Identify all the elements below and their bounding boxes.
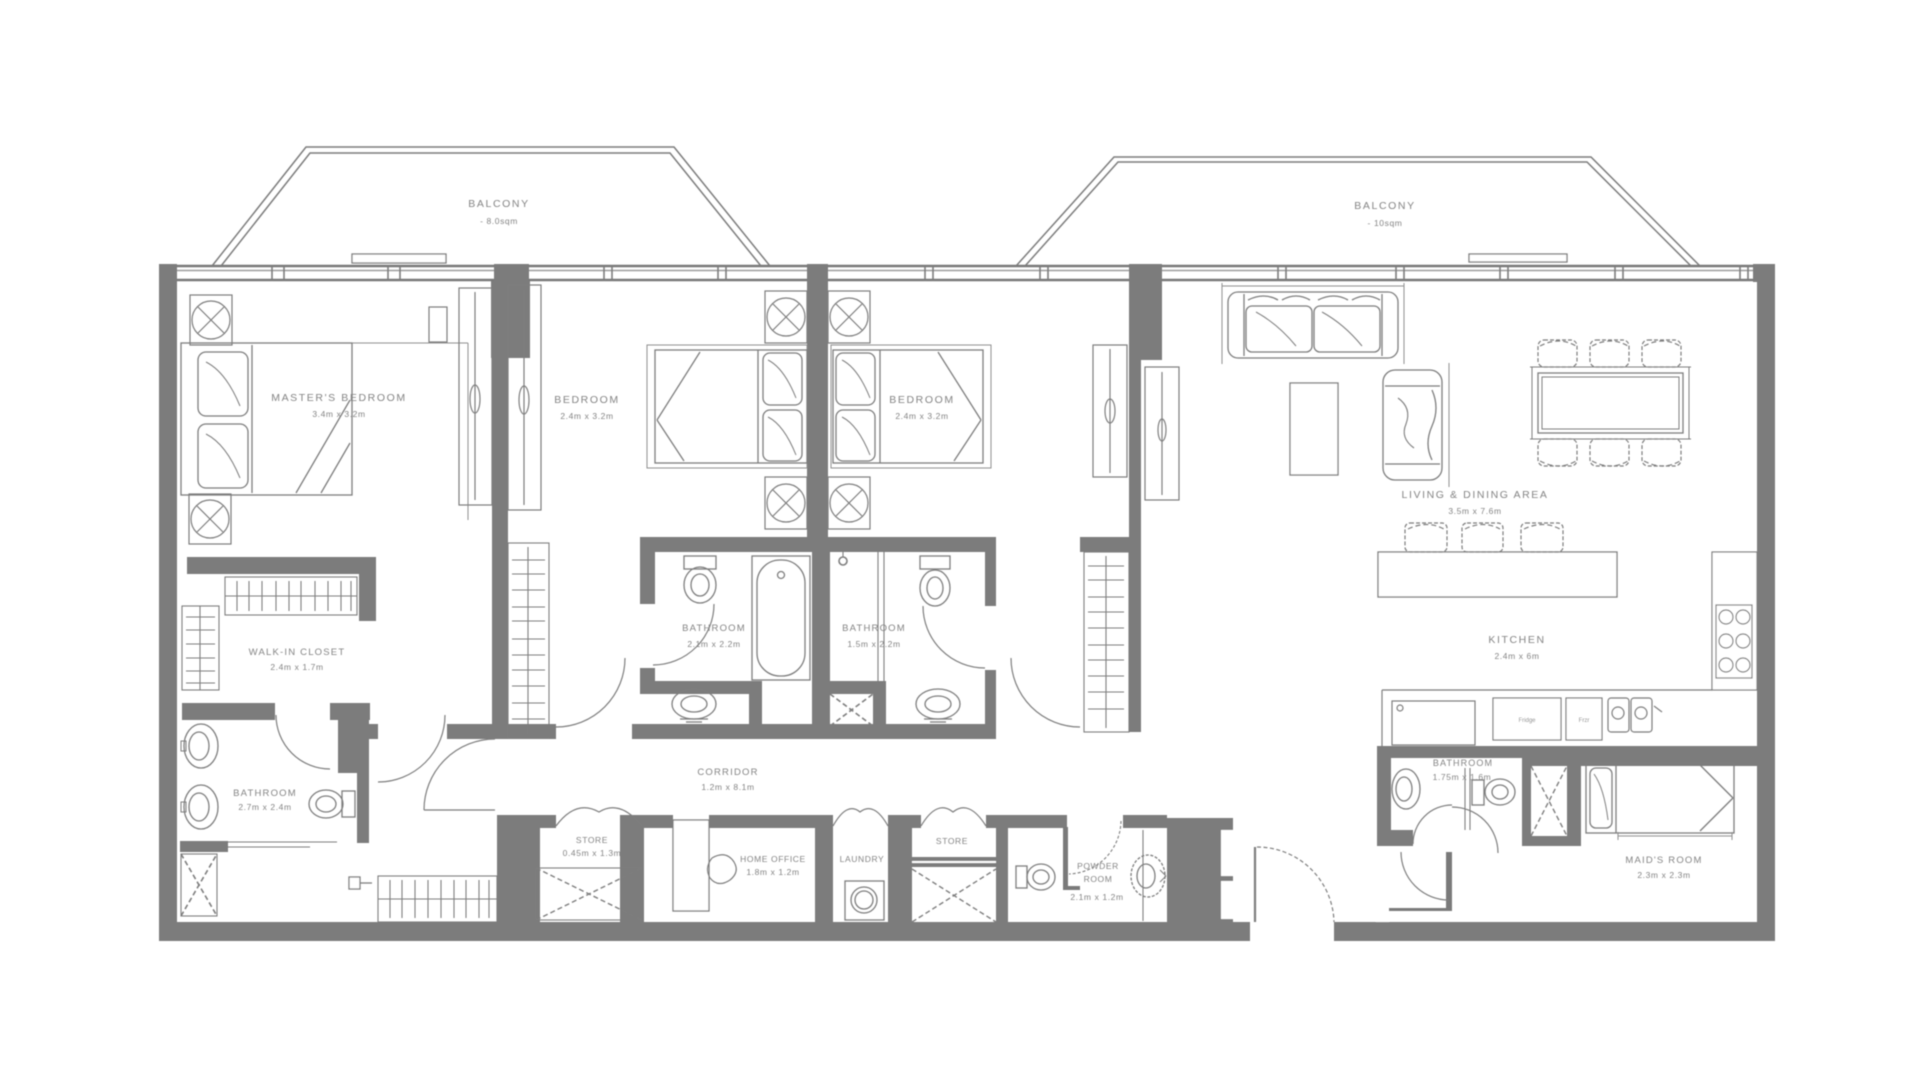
svg-text:2.4m x 3.2m: 2.4m x 3.2m bbox=[560, 411, 613, 421]
svg-text:BATHROOM: BATHROOM bbox=[842, 623, 906, 634]
svg-text:2.3m x 2.3m: 2.3m x 2.3m bbox=[1637, 870, 1690, 880]
svg-text:Fridge: Fridge bbox=[1518, 718, 1536, 724]
svg-text:BALCONY: BALCONY bbox=[1354, 200, 1415, 212]
svg-text:MAID'S ROOM: MAID'S ROOM bbox=[1625, 855, 1702, 866]
svg-text:CORRIDOR: CORRIDOR bbox=[697, 767, 758, 778]
svg-text:HOME OFFICE: HOME OFFICE bbox=[740, 854, 806, 864]
svg-text:STORE: STORE bbox=[936, 836, 968, 846]
svg-text:ROOM: ROOM bbox=[1084, 874, 1113, 884]
svg-text:2.4m x 6m: 2.4m x 6m bbox=[1494, 651, 1539, 661]
svg-text:BATHROOM: BATHROOM bbox=[233, 788, 297, 799]
svg-text:POWDER: POWDER bbox=[1077, 861, 1119, 871]
svg-text:1.5m x 2.2m: 1.5m x 2.2m bbox=[847, 639, 900, 649]
svg-text:2.4m x 3.2m: 2.4m x 3.2m bbox=[895, 411, 948, 421]
svg-text:2.1m x 2.2m: 2.1m x 2.2m bbox=[687, 639, 740, 649]
svg-text:1.8m x 1.2m: 1.8m x 1.2m bbox=[746, 867, 799, 877]
svg-text:BATHROOM: BATHROOM bbox=[682, 623, 746, 634]
svg-text:2.1m x 1.2m: 2.1m x 1.2m bbox=[1070, 892, 1123, 902]
svg-text:LIVING & DINING AREA: LIVING & DINING AREA bbox=[1402, 489, 1549, 501]
svg-text:- 10sqm: - 10sqm bbox=[1368, 218, 1403, 228]
svg-text:BEDROOM: BEDROOM bbox=[554, 394, 619, 406]
svg-text:1.75m x 1.6m: 1.75m x 1.6m bbox=[1433, 772, 1492, 782]
svg-text:3.5m x 7.6m: 3.5m x 7.6m bbox=[1448, 506, 1501, 516]
svg-text:0.45m x 1.3m: 0.45m x 1.3m bbox=[563, 848, 622, 858]
svg-text:WALK-IN CLOSET: WALK-IN CLOSET bbox=[249, 647, 346, 658]
svg-text:1.2m x 8.1m: 1.2m x 8.1m bbox=[701, 782, 754, 792]
svg-text:2.7m x 2.4m: 2.7m x 2.4m bbox=[238, 802, 291, 812]
svg-text:2.4m x 1.7m: 2.4m x 1.7m bbox=[270, 662, 323, 672]
svg-text:BEDROOM: BEDROOM bbox=[889, 394, 954, 406]
svg-text:3.4m x 3.2m: 3.4m x 3.2m bbox=[312, 409, 365, 419]
svg-text:LAUNDRY: LAUNDRY bbox=[840, 854, 885, 864]
svg-text:KITCHEN: KITCHEN bbox=[1488, 634, 1545, 646]
svg-text:- 8.0sqm: - 8.0sqm bbox=[480, 216, 518, 226]
svg-text:BALCONY: BALCONY bbox=[468, 198, 529, 210]
svg-text:BATHROOM: BATHROOM bbox=[1433, 758, 1493, 768]
svg-text:Frzr: Frzr bbox=[1579, 718, 1590, 724]
svg-text:MASTER'S BEDROOM: MASTER'S BEDROOM bbox=[271, 392, 407, 404]
svg-text:STORE: STORE bbox=[576, 835, 608, 845]
